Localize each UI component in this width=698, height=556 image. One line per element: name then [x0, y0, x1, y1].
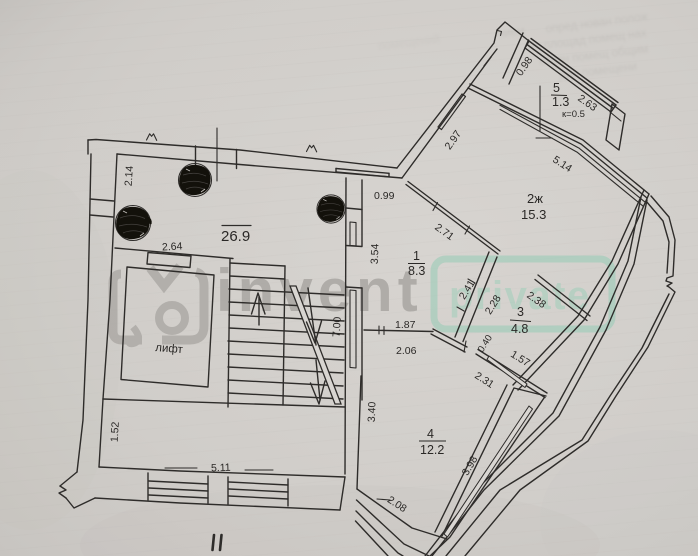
svg-text:5.11: 5.11 [211, 462, 231, 475]
svg-text:26.9: 26.9 [221, 228, 250, 245]
svg-text:7.00: 7.00 [331, 316, 344, 337]
svg-text:4.8: 4.8 [511, 322, 528, 336]
svg-text:к=0.5: к=0.5 [562, 109, 585, 120]
svg-text:12.2: 12.2 [420, 443, 444, 457]
svg-text:3: 3 [517, 305, 524, 319]
svg-text:2ж: 2ж [527, 191, 543, 206]
svg-text:2.64: 2.64 [162, 240, 183, 253]
svg-text:8.3: 8.3 [408, 264, 425, 278]
svg-text:2.06: 2.06 [396, 345, 417, 357]
svg-text:1.52: 1.52 [109, 421, 122, 442]
svg-text:0.99: 0.99 [374, 190, 395, 202]
svg-text:5: 5 [553, 81, 560, 95]
svg-text:3.54: 3.54 [369, 243, 382, 264]
svg-text:1: 1 [413, 249, 420, 263]
svg-text:1.3: 1.3 [552, 95, 569, 109]
svg-text:4: 4 [427, 427, 434, 441]
svg-text:3.40: 3.40 [366, 401, 379, 422]
svg-text:лифт: лифт [155, 342, 184, 356]
svg-text:15.3: 15.3 [521, 207, 546, 222]
svg-text:2.14: 2.14 [123, 165, 136, 186]
svg-text:1.87: 1.87 [395, 319, 416, 331]
